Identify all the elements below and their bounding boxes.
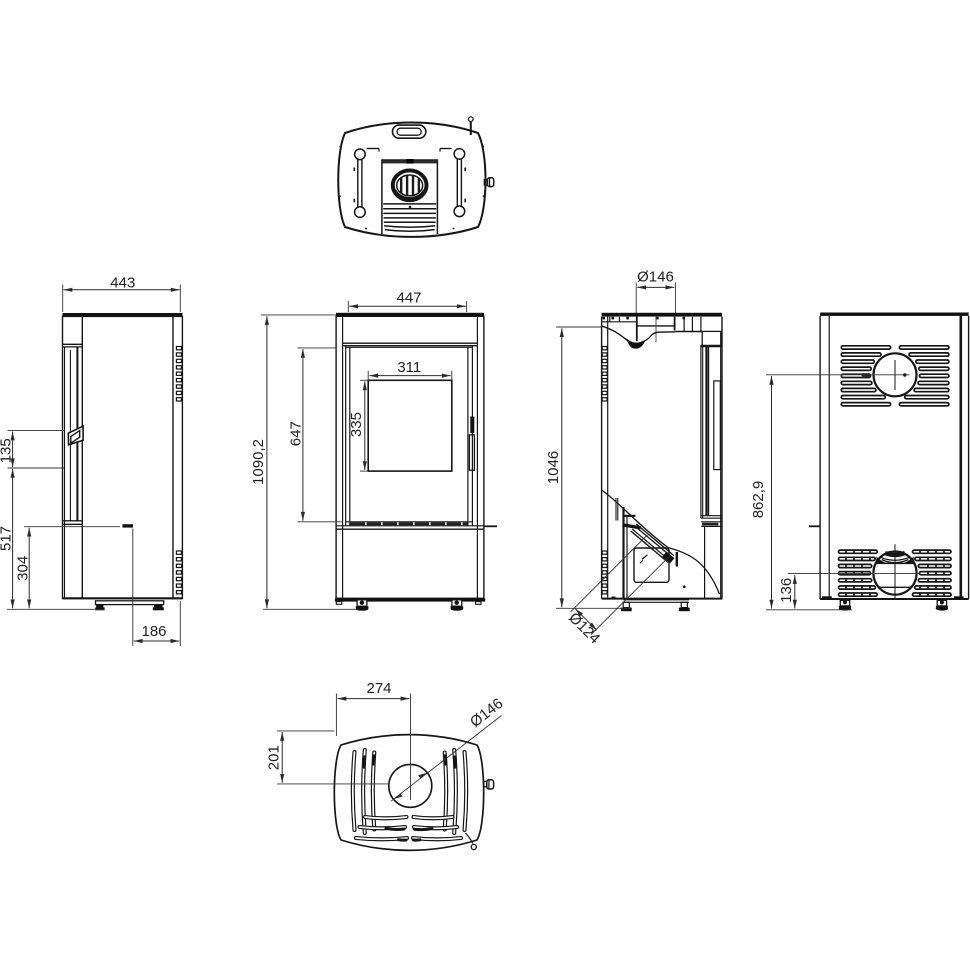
svg-text:136: 136 [778, 578, 795, 603]
svg-text:443: 443 [110, 274, 135, 291]
svg-text:335: 335 [348, 412, 365, 437]
svg-text:647: 647 [288, 421, 305, 446]
svg-text:1090,2: 1090,2 [250, 439, 267, 485]
svg-text:311: 311 [397, 359, 421, 376]
svg-text:186: 186 [141, 623, 166, 640]
svg-text:Ø146: Ø146 [637, 269, 674, 286]
svg-text:447: 447 [396, 289, 421, 306]
svg-text:201: 201 [266, 745, 283, 770]
svg-text:1046: 1046 [545, 451, 562, 484]
svg-text:862,9: 862,9 [750, 481, 767, 519]
svg-text:274: 274 [366, 680, 391, 697]
